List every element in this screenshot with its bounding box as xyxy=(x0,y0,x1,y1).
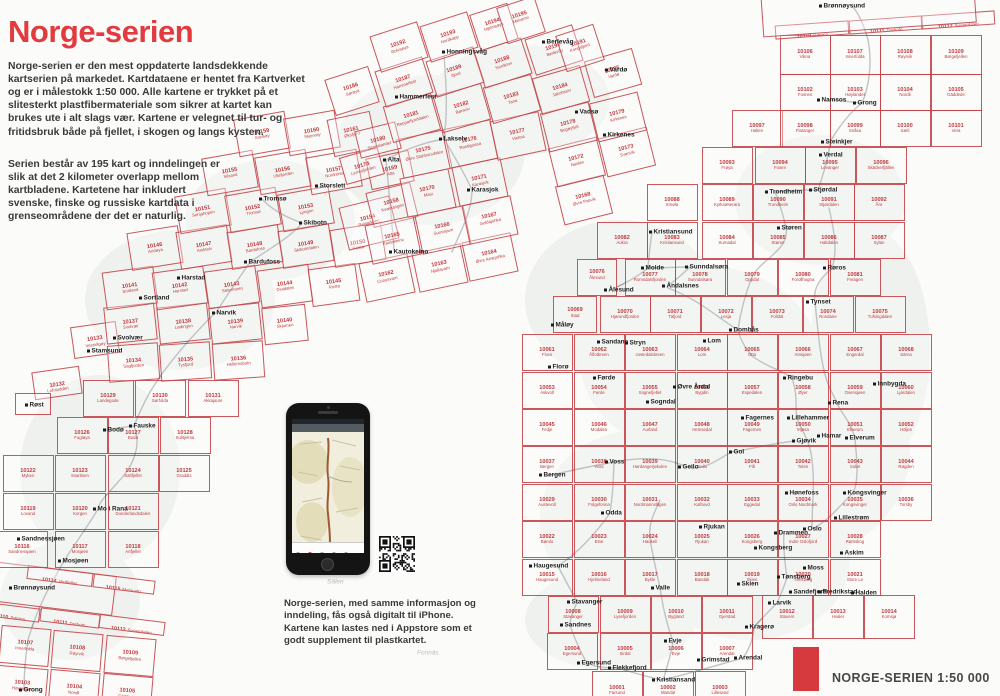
town-dot xyxy=(383,158,386,161)
town-label: Kautokeino xyxy=(389,249,428,256)
town-label: Ringebu xyxy=(783,375,813,382)
town-dot xyxy=(703,339,706,342)
town-dot xyxy=(577,661,580,664)
town-label: Brønnøysund xyxy=(819,3,865,10)
town-dot xyxy=(529,564,532,567)
town-label: Egersund xyxy=(577,660,611,667)
phone-map-graphic xyxy=(292,432,364,553)
town-label: Sogndal xyxy=(646,399,676,406)
town-dot xyxy=(765,190,768,193)
footer-series-label: NORGE-SERIEN 1:50 000 xyxy=(832,671,990,685)
background-place-label: Sälen xyxy=(327,579,344,586)
series-paragraph: Serien består av 195 kart og inndelingen… xyxy=(8,158,228,224)
town-label: Lillestrøm xyxy=(834,515,869,522)
town-label: Grimstad xyxy=(697,657,730,664)
town-label: Stamsund xyxy=(87,348,122,355)
town-dot xyxy=(697,658,700,661)
town-label: Tønsberg xyxy=(777,574,811,581)
town-dot xyxy=(299,221,302,224)
town-label: Mo i Rana xyxy=(93,506,128,513)
town-label: Førde xyxy=(593,375,615,382)
town-dot xyxy=(774,531,777,534)
town-label: Elverum xyxy=(845,435,875,442)
town-label: Harstad xyxy=(177,275,205,282)
phone-home-button xyxy=(321,558,334,571)
town-label: Stryn xyxy=(625,340,646,347)
town-label: Rena xyxy=(828,400,848,407)
town-dot xyxy=(777,226,780,229)
town-dot xyxy=(25,403,28,406)
town-dot xyxy=(605,68,608,71)
town-label: Sortland xyxy=(139,295,169,302)
town-dot xyxy=(787,416,790,419)
town-label: Vadsø xyxy=(575,109,598,116)
town-dot xyxy=(315,184,318,187)
phone-navbar xyxy=(292,424,364,432)
town-dot xyxy=(93,507,96,510)
town-dot xyxy=(575,110,578,113)
town-label: Lakselv xyxy=(439,136,467,143)
town-label: Måløy xyxy=(551,322,574,329)
town-dot xyxy=(439,137,442,140)
town-dot xyxy=(604,288,607,291)
town-dot xyxy=(823,266,826,269)
town-label: Larvik xyxy=(768,600,791,607)
town-label: Kristiansund xyxy=(649,229,693,236)
town-dot xyxy=(737,582,740,585)
town-dot xyxy=(729,328,732,331)
town-label: Bodø xyxy=(103,427,124,434)
town-dot xyxy=(843,491,846,494)
town-label: Bardufoss xyxy=(244,259,280,266)
phone-speaker xyxy=(318,411,338,414)
town-dot xyxy=(551,323,554,326)
town-dot xyxy=(625,341,628,344)
town-label: Stjørdal xyxy=(809,187,837,194)
town-dot xyxy=(803,566,806,569)
town-label: Valle xyxy=(651,585,670,592)
town-dot xyxy=(597,340,600,343)
town-dot xyxy=(729,450,732,453)
town-dot xyxy=(58,559,61,562)
town-dot xyxy=(129,424,132,427)
town-label: Kongsberg xyxy=(754,545,792,552)
town-label: Støren xyxy=(777,225,802,232)
page-title: Norge-serien xyxy=(8,14,193,50)
town-label: Karasjok xyxy=(467,187,499,194)
town-dot xyxy=(678,465,681,468)
phone-camera-dot xyxy=(327,406,330,409)
town-label: Fagernes xyxy=(741,415,774,422)
town-dot xyxy=(641,266,644,269)
town-label: Geilo xyxy=(678,464,698,471)
town-dot xyxy=(87,349,90,352)
town-label: Hammerfest xyxy=(395,94,436,101)
town-label: Verdal xyxy=(819,152,843,159)
town-dot xyxy=(821,140,824,143)
town-label: Gjøvik xyxy=(792,438,816,445)
phone-screen-map xyxy=(292,419,364,553)
town-label: Hamar xyxy=(817,433,841,440)
town-dot xyxy=(745,625,748,628)
town-label: Berlevåg xyxy=(542,39,574,46)
town-dot xyxy=(646,400,649,403)
town-label: Kirkenes xyxy=(603,132,635,139)
town-label: Tromsø xyxy=(259,196,287,203)
town-label: Sandane xyxy=(597,339,628,346)
town-label: Narvik xyxy=(212,310,236,317)
town-dot xyxy=(741,416,744,419)
town-dot xyxy=(113,336,116,339)
town-label: Drammen xyxy=(774,530,808,537)
town-dot xyxy=(395,95,398,98)
town-dot xyxy=(789,590,792,593)
town-label: Skibotn xyxy=(299,220,327,227)
town-dot xyxy=(212,311,215,314)
town-dot xyxy=(442,50,445,53)
town-label: Halden xyxy=(851,590,877,597)
town-label: Øvre Årdal xyxy=(673,384,710,391)
town-label: Molde xyxy=(641,265,664,272)
town-dot xyxy=(785,491,788,494)
town-dot xyxy=(389,250,392,253)
toolbar-icon xyxy=(320,552,324,553)
town-dot xyxy=(777,575,780,578)
town-dot xyxy=(567,600,570,603)
town-label: Storslett xyxy=(315,183,345,190)
town-label: Sandnessjøen xyxy=(17,536,65,543)
town-label: Steinkjer xyxy=(821,139,853,146)
town-dot xyxy=(664,639,667,642)
town-label: Røros xyxy=(823,265,846,272)
intro-paragraph: Norge-serien er den mest oppdaterte land… xyxy=(8,60,308,139)
town-label: Arendal xyxy=(734,655,762,662)
town-dot xyxy=(685,265,688,268)
town-dot xyxy=(539,473,542,476)
town-dot xyxy=(560,623,563,626)
town-label: Skien xyxy=(737,581,759,588)
town-dot xyxy=(873,382,876,385)
town-dot xyxy=(19,688,22,691)
town-label: Haugesund xyxy=(529,563,568,570)
town-label: Namsos xyxy=(817,97,846,104)
town-label: Vardø xyxy=(605,67,627,74)
town-label: Innbygda xyxy=(873,381,906,388)
town-dot xyxy=(853,101,856,104)
town-dot xyxy=(467,188,470,191)
town-dot xyxy=(652,678,655,681)
toolbar-icon xyxy=(344,552,348,553)
town-dot xyxy=(662,284,665,287)
town-dot xyxy=(601,511,604,514)
town-label: Kragerø xyxy=(745,624,774,631)
town-dot xyxy=(651,586,654,589)
town-label: Flekkefjord xyxy=(608,665,647,672)
town-dot xyxy=(605,460,608,463)
town-dot xyxy=(259,197,262,200)
town-dot xyxy=(699,525,702,528)
town-dot xyxy=(817,434,820,437)
town-label: Trondheim xyxy=(765,189,802,196)
town-label: Hønefoss xyxy=(785,490,819,497)
town-dot xyxy=(845,436,848,439)
town-dot xyxy=(851,591,854,594)
town-dot xyxy=(834,516,837,519)
town-dot xyxy=(734,656,737,659)
town-dot xyxy=(603,133,606,136)
town-dot xyxy=(177,276,180,279)
town-label: Kongsvinger xyxy=(843,490,887,497)
town-label: Grong xyxy=(19,687,43,694)
background-place-label: Fonnäs xyxy=(417,650,439,657)
town-label: Dombås xyxy=(729,327,759,334)
town-label: Røst xyxy=(25,402,44,409)
town-label: Grong xyxy=(853,100,877,107)
town-label: Brønnøysund xyxy=(9,585,55,592)
toolbar-icon xyxy=(296,552,300,553)
town-label: Honningsvåg xyxy=(442,49,487,56)
town-label: Mosjøen xyxy=(58,558,88,565)
iphone-illustration xyxy=(286,403,370,575)
town-dot xyxy=(817,98,820,101)
town-label: Florø xyxy=(548,364,568,371)
town-dot xyxy=(608,666,611,669)
phone-toolbar xyxy=(292,542,364,553)
iphone-caption: Norge-serien, med samme informasjon og i… xyxy=(284,598,476,648)
town-label: Alta xyxy=(383,157,400,164)
town-dot xyxy=(542,40,545,43)
town-label: Kristiansand xyxy=(652,677,695,684)
town-dot xyxy=(806,300,809,303)
town-dot xyxy=(818,590,821,593)
town-dot xyxy=(9,586,12,589)
town-dot xyxy=(840,551,843,554)
town-dot xyxy=(768,601,771,604)
town-dot xyxy=(792,439,795,442)
brochure-page: 10001Farsund10002Mandal10003Lillesand100… xyxy=(0,0,1000,696)
town-dot xyxy=(548,365,551,368)
town-dot xyxy=(828,401,831,404)
town-label: Fauske xyxy=(129,423,156,430)
town-dot xyxy=(244,260,247,263)
town-label: Rjukan xyxy=(699,524,725,531)
record-icon xyxy=(308,552,312,553)
town-label: Moss xyxy=(803,565,824,572)
footer-red-block xyxy=(793,647,819,691)
town-label: Voss xyxy=(605,459,624,466)
town-dot xyxy=(139,296,142,299)
town-label: Sunndalsøra xyxy=(685,264,728,271)
town-dot xyxy=(809,188,812,191)
town-label: Tynset xyxy=(806,299,831,306)
town-label: Lillehammer xyxy=(787,415,829,422)
town-label: Åndalsnes xyxy=(662,283,699,290)
town-label: Lom xyxy=(703,338,721,345)
town-dot xyxy=(593,376,596,379)
town-label: Bergen xyxy=(539,472,566,479)
town-dot xyxy=(17,537,20,540)
town-label: Gol xyxy=(729,449,744,456)
town-dot xyxy=(819,153,822,156)
town-label: Sandnes xyxy=(560,622,591,629)
town-label: Ålesund xyxy=(604,287,634,294)
town-dot xyxy=(783,376,786,379)
town-label: Odda xyxy=(601,510,622,517)
town-dot xyxy=(819,4,822,7)
town-label: Evje xyxy=(664,638,682,645)
town-label: Askim xyxy=(840,550,864,557)
qr-code xyxy=(379,536,415,572)
town-label: Stavanger xyxy=(567,599,602,606)
town-label: Svolvær xyxy=(113,335,143,342)
town-dot xyxy=(673,385,676,388)
town-dot xyxy=(103,428,106,431)
town-dot xyxy=(754,546,757,549)
town-dot xyxy=(649,230,652,233)
toolbar-icon xyxy=(332,552,336,553)
